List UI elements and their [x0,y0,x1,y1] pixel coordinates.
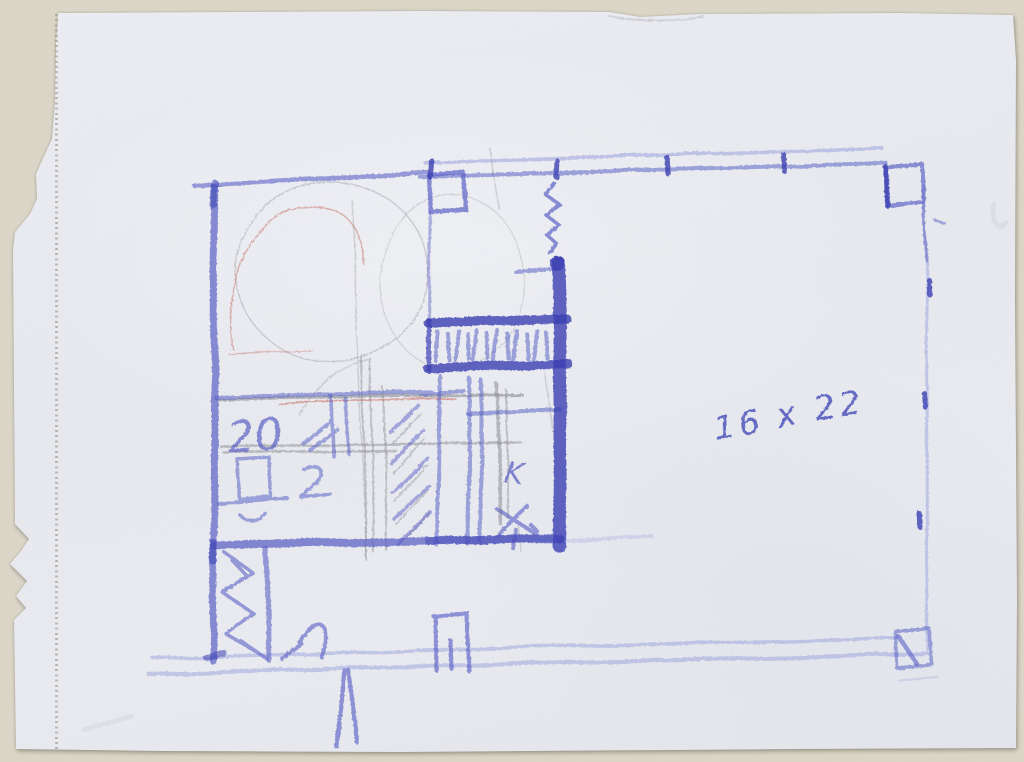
paper-sheet [0,0,1024,762]
scanned-sketch-page: { "document": { "description": "Hand-dra… [0,0,1024,762]
paper-shadow-wrap [0,0,1024,762]
perforation-holes [55,14,58,749]
